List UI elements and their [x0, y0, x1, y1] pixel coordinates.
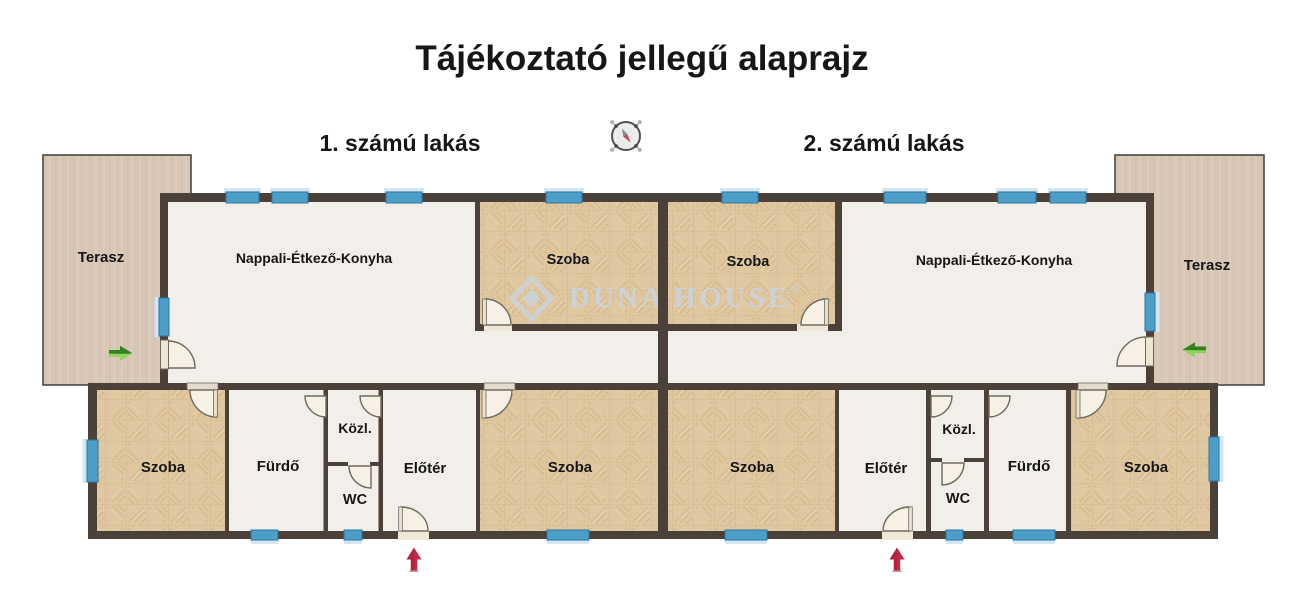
svg-text:Szoba: Szoba	[141, 459, 186, 476]
svg-text:Előtér: Előtér	[865, 460, 908, 477]
svg-text:WC: WC	[343, 492, 368, 508]
svg-text:Nappali-Étkező-Konyha: Nappali-Étkező-Konyha	[916, 252, 1073, 268]
svg-text:Szoba: Szoba	[727, 254, 771, 270]
svg-text:DUNA HOUSE: DUNA HOUSE	[569, 282, 790, 314]
svg-text:Szoba: Szoba	[730, 459, 775, 476]
svg-text:Terasz: Terasz	[1184, 257, 1230, 274]
svg-text:Terasz: Terasz	[78, 249, 124, 266]
svg-text:1. számú lakás: 1. számú lakás	[319, 130, 480, 156]
svg-text:Szoba: Szoba	[547, 252, 591, 268]
svg-text:Szoba: Szoba	[1124, 459, 1169, 476]
svg-text:Szoba: Szoba	[548, 459, 593, 476]
svg-text:Nappali-Étkező-Konyha: Nappali-Étkező-Konyha	[236, 250, 393, 266]
svg-text:Előtér: Előtér	[404, 460, 447, 477]
svg-text:Fürdő: Fürdő	[1008, 458, 1051, 475]
svg-text:®: ®	[791, 283, 799, 295]
svg-text:Közl.: Közl.	[338, 420, 371, 436]
svg-text:Közl.: Közl.	[942, 421, 975, 437]
svg-text:2. számú lakás: 2. számú lakás	[803, 130, 964, 156]
svg-text:Tájékoztató jellegű alaprajz: Tájékoztató jellegű alaprajz	[415, 39, 868, 78]
svg-text:WC: WC	[946, 491, 971, 507]
svg-text:Fürdő: Fürdő	[257, 458, 300, 475]
